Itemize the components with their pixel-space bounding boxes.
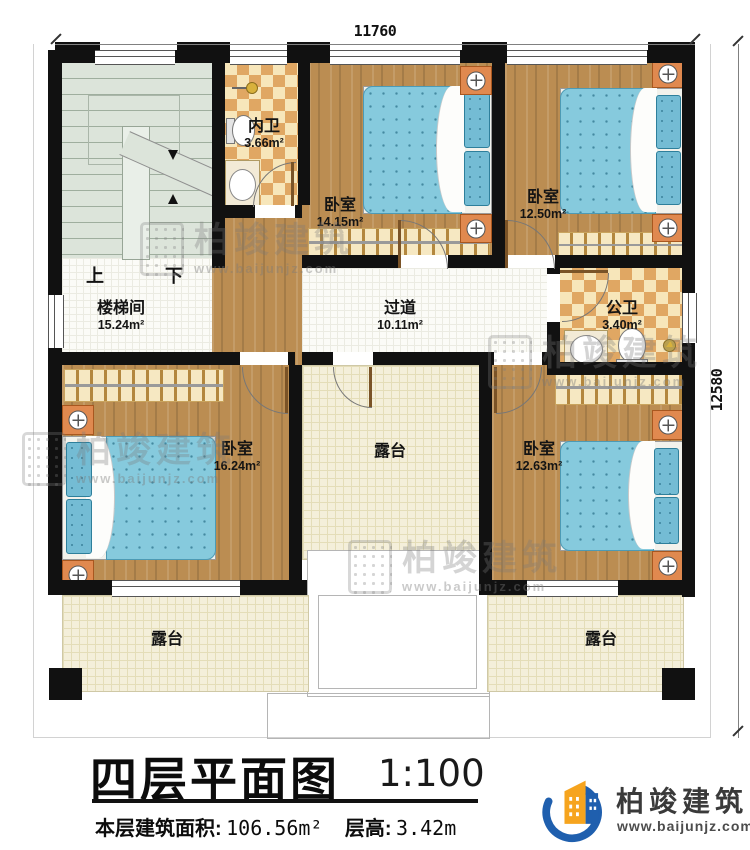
room-name: 露台	[585, 630, 617, 649]
nightstand	[652, 551, 684, 581]
lamp-icon	[659, 416, 678, 435]
window-publicbath	[682, 293, 697, 343]
lamp-icon	[69, 411, 88, 430]
terrace-center-floor	[302, 365, 481, 560]
room-label-bedroom-br: 卧室 12.63m²	[516, 440, 563, 474]
dimension-line-top	[55, 44, 695, 45]
room-name: 露台	[374, 442, 406, 461]
door-leaf	[291, 162, 294, 206]
dimension-line-right	[738, 44, 739, 738]
glass-door-terrace-br	[527, 580, 618, 597]
door-leaf	[398, 220, 401, 268]
stair-arrow-down-icon	[168, 150, 178, 160]
title-underline	[92, 799, 478, 803]
bed-pillow	[464, 151, 490, 206]
door-leaf	[505, 220, 508, 268]
room-area: 10.11m²	[377, 318, 423, 333]
wall-publicbath-bottom	[553, 362, 695, 375]
wall-bath-bedroom	[298, 50, 310, 205]
floor-area-value: 106.56m²	[226, 816, 322, 840]
bed-sheet	[628, 441, 655, 549]
dimension-top-value: 11760	[300, 22, 450, 40]
room-label-corridor: 过道 10.11m²	[377, 299, 423, 333]
door-leaf	[285, 367, 288, 413]
logo-name: 柏竣建筑	[616, 780, 748, 820]
room-name: 卧室	[214, 440, 261, 459]
column-terrace-br	[662, 668, 695, 700]
room-name: 内卫	[244, 117, 284, 136]
room-area: 12.50m²	[520, 207, 567, 222]
stair-down-label: 下	[165, 262, 183, 288]
wall-bedrooms-bottom	[302, 255, 682, 268]
faucet-icon	[246, 82, 258, 94]
dimension-right-value: 12580	[708, 340, 724, 440]
room-label-bedroom-tr: 卧室 12.50m²	[520, 188, 567, 222]
lamp-icon	[659, 219, 678, 238]
nightstand	[62, 405, 94, 435]
room-area: 16.24m²	[214, 459, 261, 474]
room-area: 12.63m²	[516, 459, 563, 474]
logo-url: www.baijunjz.com	[617, 818, 750, 834]
floor-height-label: 层高:	[345, 818, 392, 840]
floor-height-value: 3.42m	[396, 816, 456, 840]
corridor-floor	[302, 268, 547, 352]
title-info-line: 本层建筑面积: 106.56m² 层高: 3.42m	[95, 812, 456, 841]
window-bedroom-tl	[330, 50, 460, 65]
door-opening	[494, 352, 542, 365]
sink-icon-inner	[229, 169, 256, 201]
site-line-left	[33, 44, 34, 738]
room-name: 卧室	[516, 440, 563, 459]
wall-terrace-bedroom-br	[479, 365, 492, 595]
lamp-icon	[659, 65, 678, 84]
wall-stair-bath	[212, 50, 225, 268]
floor-area-label: 本层建筑面积:	[95, 818, 222, 840]
bed-pillow	[654, 497, 679, 544]
nightstand	[460, 66, 492, 95]
room-label-bedroom-tl: 卧室 14.15m²	[317, 196, 364, 230]
bed-pillow	[66, 442, 92, 497]
lamp-icon	[467, 219, 486, 238]
nightstand	[652, 60, 684, 88]
room-name: 露台	[151, 630, 183, 649]
room-name: 卧室	[317, 196, 364, 215]
door-leaf	[369, 367, 372, 407]
bed-pillow	[66, 499, 92, 554]
wardrobe-bedroom-bl	[64, 369, 224, 402]
room-label-publicbath: 公卫 3.40m²	[602, 299, 642, 333]
lower-roof-outline	[267, 693, 490, 739]
window-stair-left	[48, 295, 64, 348]
logo-icon	[536, 772, 616, 844]
room-label-innerbath: 内卫 3.66m²	[244, 117, 284, 151]
bed-mattress	[106, 436, 216, 560]
door-opening	[240, 352, 288, 365]
door-opening	[547, 274, 560, 322]
nightstand	[652, 214, 684, 242]
room-name: 公卫	[602, 299, 642, 318]
room-area: 15.24m²	[97, 318, 145, 333]
bed-pillow	[656, 95, 681, 149]
door-opening	[333, 352, 373, 365]
window-stair	[95, 50, 175, 65]
room-area: 3.40m²	[602, 318, 642, 333]
room-name: 卧室	[520, 188, 567, 207]
towel-ring-icon	[663, 339, 676, 352]
toilet-icon-public	[618, 328, 646, 363]
room-label-bedroom-bl: 卧室 16.24m²	[214, 440, 261, 474]
wardrobe-bedroom-br	[555, 370, 684, 405]
room-area: 3.66m²	[244, 136, 284, 151]
window-innerbath	[230, 50, 287, 65]
title-scale: 1:100	[378, 752, 485, 795]
lamp-icon	[659, 557, 678, 576]
void-outline-inner	[318, 595, 477, 689]
room-label-stairhall: 楼梯间 15.24m²	[97, 299, 145, 333]
room-label-terrace-br: 露台	[585, 630, 617, 649]
bed-pillow	[464, 93, 490, 148]
wall-bedroom-bl-terrace	[289, 365, 302, 582]
bed-sheet	[630, 88, 657, 212]
room-area: 14.15m²	[317, 215, 364, 230]
bed-pillow	[656, 151, 681, 205]
door-leaf	[494, 367, 497, 413]
window-bedroom-tr	[507, 50, 647, 65]
room-label-terrace-center: 露台	[374, 442, 406, 461]
stair-up-label: 上	[86, 262, 104, 288]
room-name: 楼梯间	[97, 299, 145, 318]
lamp-icon	[467, 71, 486, 90]
nightstand	[460, 214, 492, 243]
nightstand	[652, 410, 684, 440]
stair-arrow-up-icon	[168, 194, 178, 204]
sink-icon-public	[570, 335, 603, 364]
column-terrace-bl	[49, 668, 82, 700]
bedroom-tl-vestibule-floor	[212, 205, 302, 365]
floor-plan-canvas: 上 下	[0, 0, 750, 850]
dimension-tick	[689, 33, 700, 44]
terrace-bl-floor	[62, 595, 309, 692]
wall-bedrooms-divider	[492, 50, 505, 268]
bed-sheet	[436, 86, 465, 212]
bed-pillow	[654, 448, 679, 495]
glass-door-terrace-bl	[112, 580, 240, 597]
room-label-terrace-bl: 露台	[151, 630, 183, 649]
room-name: 过道	[377, 299, 423, 318]
